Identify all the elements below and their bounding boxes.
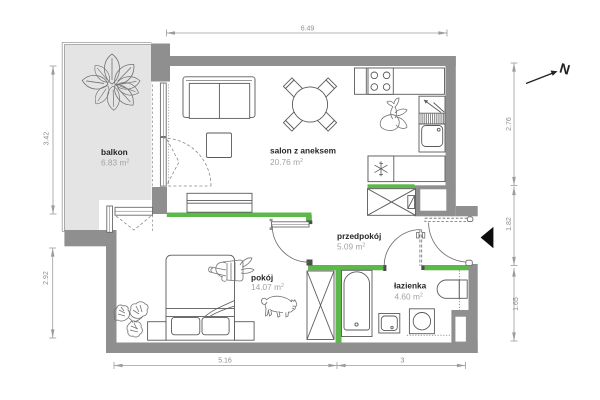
svg-text:2.76: 2.76 (506, 117, 513, 131)
svg-text:14.07 m2: 14.07 m2 (251, 282, 284, 292)
svg-text:balkon: balkon (101, 147, 128, 157)
svg-text:6.49: 6.49 (301, 26, 315, 33)
svg-text:pokój: pokój (251, 273, 273, 283)
svg-text:1.65: 1.65 (513, 297, 520, 311)
svg-text:3.42: 3.42 (44, 132, 51, 146)
svg-text:5.16: 5.16 (218, 358, 232, 365)
svg-text:łazienka: łazienka (394, 281, 427, 291)
svg-text:salon z aneksem: salon z aneksem (270, 146, 336, 156)
svg-text:3: 3 (401, 358, 405, 365)
svg-text:6.83 m2: 6.83 m2 (101, 158, 129, 168)
svg-text:przedpokój: przedpokój (337, 231, 381, 241)
svg-text:5.09 m2: 5.09 m2 (337, 242, 365, 252)
svg-text:4.60 m2: 4.60 m2 (395, 292, 423, 302)
svg-text:20.76 m2: 20.76 m2 (270, 157, 303, 167)
svg-text:1.82: 1.82 (506, 217, 513, 231)
svg-text:2.92: 2.92 (43, 271, 50, 285)
